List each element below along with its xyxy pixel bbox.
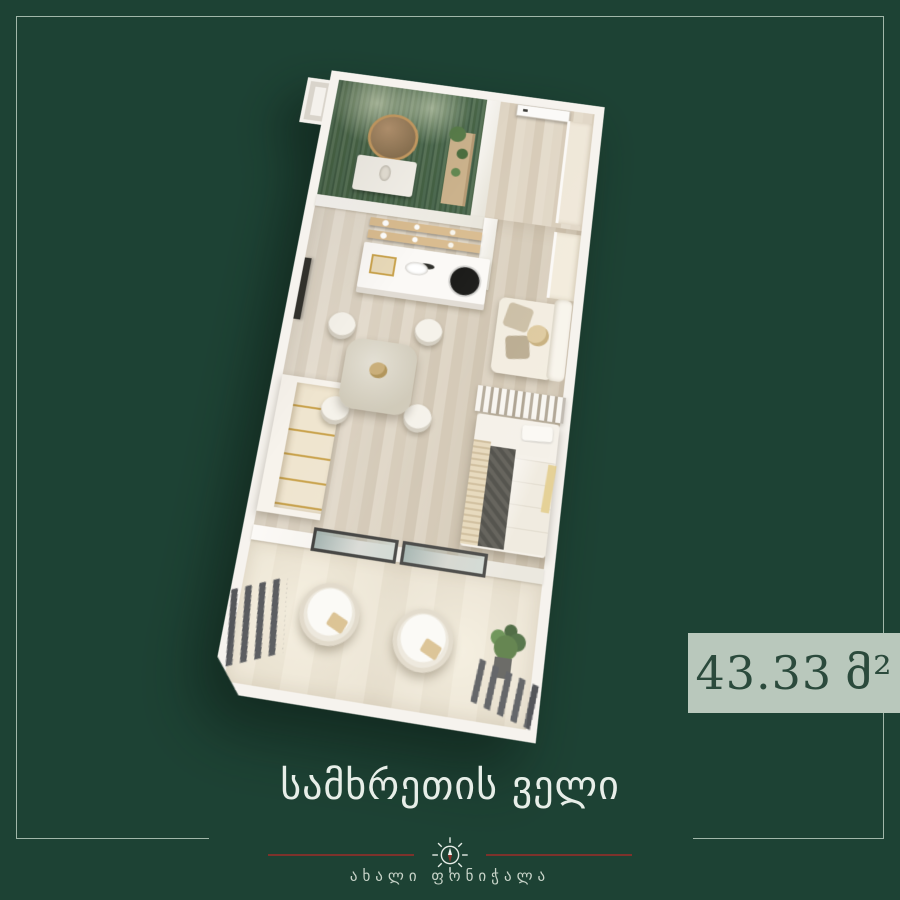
district-subtitle: ახალი ფონიჭალა [0,867,900,885]
divider-line-left [268,854,414,856]
floor-plan-rooms [224,80,595,730]
privacy-screen-left [226,577,288,667]
area-badge: 43.33 მ² [688,633,900,713]
floor-plan-walls [211,70,605,743]
table-centerpiece [368,361,388,379]
bed [460,413,560,558]
door-handle-icon [523,109,528,112]
sofa [490,291,574,383]
floor-plan [211,70,605,743]
dining-table [337,336,420,417]
sofa-pillow [505,336,530,359]
project-title: სამხრეთის ველი [0,763,900,809]
bed-pillow [522,425,553,443]
divider-line-right [486,854,632,856]
bed-pillow [518,441,550,459]
poster-background: 43.33 მ² სამხრეთის ველი ახალი ფონიჭალა [0,0,900,900]
counter-art-frame [369,254,397,277]
area-unit: მ² [845,646,892,700]
area-value: 43.33 [695,646,832,700]
